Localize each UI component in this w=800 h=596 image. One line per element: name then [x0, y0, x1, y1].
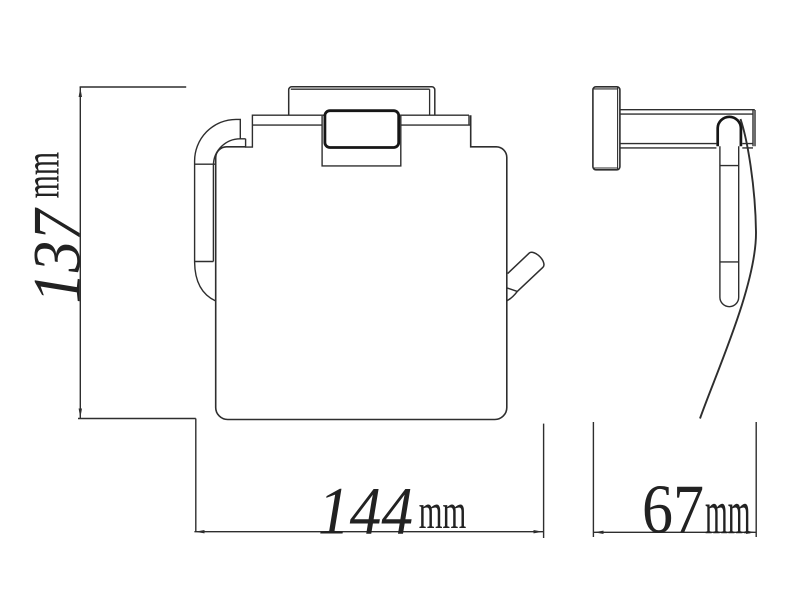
svg-text:144: 144 — [318, 473, 413, 549]
svg-text:mm: mm — [419, 483, 467, 539]
svg-text:mm: mm — [705, 479, 751, 547]
svg-text:mm: mm — [14, 152, 70, 199]
svg-text:137: 137 — [19, 207, 95, 304]
svg-text:67: 67 — [642, 472, 704, 549]
